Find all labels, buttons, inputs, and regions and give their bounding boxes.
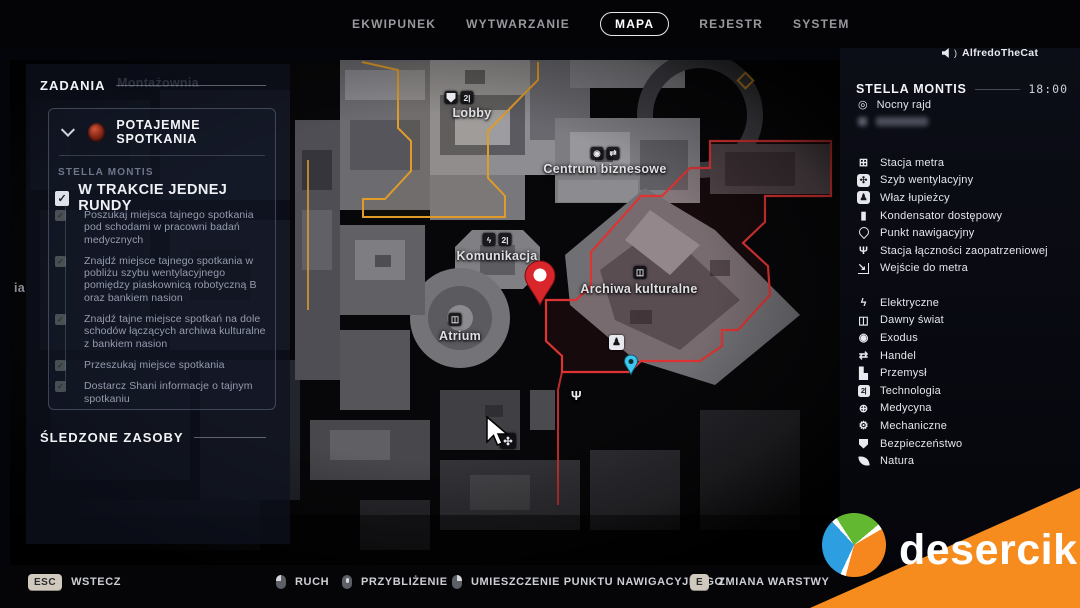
lobby-label-icons: 2|: [445, 91, 474, 104]
tasks-header: ZADANIA: [40, 78, 266, 93]
legend-row: Punkt nawigacyjny: [856, 224, 1048, 242]
night-raid-icon: ◎: [858, 98, 868, 111]
game-screen: Montażownia 2| Lobby ◉ ⇄ Centrum bizneso…: [0, 0, 1080, 608]
medicine-icon: ⊕: [856, 402, 871, 415]
tasks-panel: ZADANIA POTAJEMNE SPOTKANIA STELLA MONTI…: [26, 64, 290, 544]
subtask-list: ✓ Poszukaj miejsca tajnego spotkania pod…: [55, 209, 267, 405]
top-menu-bar: EKWIPUNEK WYTWARZANIE MAPA REJESTR SYSTE…: [0, 0, 1080, 48]
legend-label: Właz łupieżcy: [880, 192, 950, 204]
legend-row: Ψ Stacja łączności zaopatrzeniowej: [856, 242, 1048, 260]
tab-mapa[interactable]: MAPA: [600, 12, 669, 36]
speaker-wave: ): [954, 48, 957, 58]
legend-row: ⇄ Handel: [856, 347, 962, 365]
vent-shaft-icon: ✣: [856, 174, 871, 187]
legend-label: Medycyna: [880, 402, 932, 414]
player-audio-indicator: ) AlfredoTheCat: [942, 47, 1038, 59]
region-header: STELLA MONTIS 18:00: [856, 82, 1068, 96]
region-title: STELLA MONTIS: [856, 82, 967, 96]
legend-label: Dawny świat: [880, 314, 944, 326]
player-name: AlfredoTheCat: [962, 47, 1038, 59]
scavenger-hatch-icon: ♟: [609, 335, 624, 350]
event-blurred: [858, 117, 928, 126]
legend-row: ⊕ Medycyna: [856, 400, 962, 418]
subtask-item: ✓ Przeszukaj miejsce spotkania: [55, 359, 267, 371]
legend-row: ⚙ Mechaniczne: [856, 417, 962, 435]
subtask-text: Poszukaj miejsca tajnego spotkania pod s…: [84, 209, 267, 246]
trade-icon: ⇄: [607, 147, 620, 160]
security-icon: [445, 91, 458, 104]
mouse-right-icon: [452, 575, 462, 589]
action-label: RUCH: [295, 576, 329, 588]
action-zoom[interactable]: PRZYBLIŻENIE: [342, 565, 448, 599]
komunikacja-label-icons: ϟ 2|: [483, 233, 512, 246]
divider: [59, 155, 265, 156]
legend-row: ↘ Wejście do metra: [856, 260, 1048, 278]
subtask-checkbox: ✓: [55, 256, 66, 267]
legend-markers: ⊞ Stacja metra ✣ Szyb wentylacyjny ♟ Wła…: [856, 154, 1048, 277]
archiwa-label-icons: ◫: [634, 266, 647, 279]
electric-icon: ϟ: [856, 297, 871, 309]
legend-row: ▙ Przemysł: [856, 364, 962, 382]
map-label-atrium: Atrium: [439, 329, 481, 343]
tab-ekwipunek[interactable]: EKWIPUNEK: [352, 13, 436, 35]
mouse-left-icon: [276, 575, 286, 589]
map-label-centrum-biznesowe: Centrum biznesowe: [543, 162, 666, 176]
subtask-item: ✓ Znajdź miejsce tajnego spotkania w pob…: [55, 255, 267, 304]
action-move[interactable]: RUCH: [276, 565, 329, 599]
tab-rejestr[interactable]: REJESTR: [699, 13, 763, 35]
old-world-icon: ◫: [856, 314, 871, 327]
tab-wytwarzanie[interactable]: WYTWARZANIE: [466, 13, 570, 35]
nature-icon: [856, 456, 871, 466]
legend-label: Stacja metra: [880, 157, 944, 169]
legend-label: Stacja łączności zaopatrzeniowej: [880, 245, 1048, 257]
industry-icon: ▙: [856, 367, 871, 380]
objective-checkbox[interactable]: ✓: [55, 191, 69, 206]
tracked-resources-title: ŚLEDZONE ZASOBY: [40, 430, 184, 445]
mechanical-icon: ⚙: [856, 419, 871, 432]
exodus-icon: ◉: [856, 331, 871, 344]
speaker-icon: [942, 48, 952, 58]
centrum-label-icons: ◉ ⇄: [591, 147, 620, 160]
subtask-item: ✓ Znajdź tajne miejsce spotkań na dole s…: [55, 313, 267, 350]
esc-key: ESC: [28, 574, 62, 590]
quest-region: STELLA MONTIS: [58, 167, 154, 178]
action-change-layer[interactable]: E ZMIANA WARSTWY: [690, 565, 829, 599]
map-legend-panel: STELLA MONTIS 18:00 ◎ Nocny rajd ⊞ Stacj…: [848, 60, 1074, 565]
subtask-checkbox: ✓: [55, 381, 66, 392]
watermark-logo: [822, 513, 886, 577]
access-capacitor-icon: ▮: [856, 209, 871, 222]
event-label: Nocny rajd: [877, 99, 932, 111]
legend-row: ⊞ Stacja metra: [856, 154, 1048, 172]
map-label-archiwa-kulturalne: Archiwa kulturalne: [580, 282, 697, 296]
exodus-icon: ◉: [591, 147, 604, 160]
quest-title: POTAJEMNE SPOTKANIA: [116, 118, 275, 146]
technology-icon: 2|: [856, 385, 871, 397]
action-label: PRZYBLIŻENIE: [361, 576, 448, 588]
legend-label: Wejście do metra: [880, 262, 968, 274]
legend-label: Exodus: [880, 332, 918, 344]
legend-label: Mechaniczne: [880, 420, 947, 432]
blurred-icon: [858, 117, 867, 126]
technology-icon: 2|: [499, 233, 512, 246]
main-nav: EKWIPUNEK WYTWARZANIE MAPA REJESTR SYSTE…: [352, 0, 850, 48]
legend-label: Kondensator dostępowy: [880, 210, 1002, 222]
tab-system[interactable]: SYSTEM: [793, 13, 850, 35]
legend-row: ϟ Elektryczne: [856, 294, 962, 312]
legend-row: ◉ Exodus: [856, 329, 962, 347]
game-time: 18:00: [1028, 82, 1068, 96]
action-label: WSTECZ: [71, 576, 121, 588]
legend-label: Szyb wentylacyjny: [880, 174, 973, 186]
map-label-partial: ia: [14, 281, 25, 295]
metro-station-icon: ⊞: [856, 156, 871, 169]
legend-row: Bezpieczeństwo: [856, 435, 962, 453]
event-night-raid: ◎ Nocny rajd: [858, 98, 931, 111]
tracked-resources-header: ŚLEDZONE ZASOBY: [40, 430, 266, 445]
subtask-text: Przeszukaj miejsce spotkania: [84, 359, 225, 371]
legend-label: Bezpieczeństwo: [880, 438, 962, 450]
trade-icon: ⇄: [856, 349, 871, 362]
legend-label: Przemysł: [880, 367, 927, 379]
legend-label: Punkt nawigacyjny: [880, 227, 975, 239]
waypoint-pin-red[interactable]: [522, 259, 558, 312]
action-label: UMIESZCZENIE PUNKTU NAWIGACYJNEGO: [471, 576, 724, 588]
blurred-text: [876, 117, 928, 126]
subtask-text: Znajdź miejsce tajnego spotkania w pobli…: [84, 255, 267, 304]
atrium-label-icons: ◫: [449, 313, 462, 326]
supply-link-station-icon: Ψ: [856, 245, 871, 257]
legend-row: ♟ Właz łupieżcy: [856, 189, 1048, 207]
scavenger-hatch-icon: ♟: [856, 191, 871, 204]
old-world-icon: ◫: [449, 313, 462, 326]
subtask-checkbox: ✓: [55, 360, 66, 371]
legend-label: Elektryczne: [880, 297, 939, 309]
legend-categories: ϟ Elektryczne ◫ Dawny świat ◉ Exodus ⇄ H…: [856, 294, 962, 470]
subtask-item: ✓ Poszukaj miejsca tajnego spotkania pod…: [55, 209, 267, 246]
e-key: E: [690, 574, 709, 590]
legend-label: Technologia: [880, 385, 941, 397]
legend-row: Natura: [856, 452, 962, 470]
subtask-item: ✓ Dostarcz Shani informacje o tajnym spo…: [55, 380, 267, 405]
legend-label: Handel: [880, 350, 916, 362]
technology-icon: 2|: [461, 91, 474, 104]
supply-link-icon: Ψ: [571, 388, 582, 403]
security-icon: [856, 439, 871, 449]
subtask-checkbox: ✓: [55, 314, 66, 325]
subtask-text: Znajdź tajne miejsce spotkań na dole sch…: [84, 313, 267, 350]
legend-row: ✣ Szyb wentylacyjny: [856, 172, 1048, 190]
electric-icon: ϟ: [483, 233, 496, 246]
mouse-cursor: [485, 416, 511, 455]
legend-row: ▮ Kondensator dostępowy: [856, 207, 1048, 225]
action-label: ZMIANA WARSTWY: [718, 576, 829, 588]
quest-faction-icon: [88, 123, 106, 142]
subtask-text: Dostarcz Shani informacje o tajnym spotk…: [84, 380, 267, 405]
chevron-down-icon: [61, 123, 75, 137]
watermark-text: desercik: [899, 526, 1078, 575]
legend-row: 2| Technologia: [856, 382, 962, 400]
action-place-waypoint[interactable]: UMIESZCZENIE PUNKTU NAWIGACYJNEGO: [452, 565, 724, 599]
old-world-icon: ◫: [634, 266, 647, 279]
nav-point-pin-cyan[interactable]: [623, 354, 639, 381]
metro-entrance-icon: ↘: [856, 263, 871, 274]
legend-label: Natura: [880, 455, 914, 467]
tasks-title: ZADANIA: [40, 78, 106, 93]
subtask-checkbox: ✓: [55, 210, 66, 221]
quest-header[interactable]: POTAJEMNE SPOTKANIA: [49, 119, 275, 145]
mouse-wheel-icon: [342, 575, 352, 589]
legend-row: ◫ Dawny świat: [856, 312, 962, 330]
nav-point-icon: [856, 230, 871, 237]
map-label-lobby: Lobby: [453, 106, 492, 120]
action-back[interactable]: ESC WSTECZ: [28, 565, 121, 599]
quest-card: POTAJEMNE SPOTKANIA STELLA MONTIS ✓ W TR…: [48, 108, 276, 410]
